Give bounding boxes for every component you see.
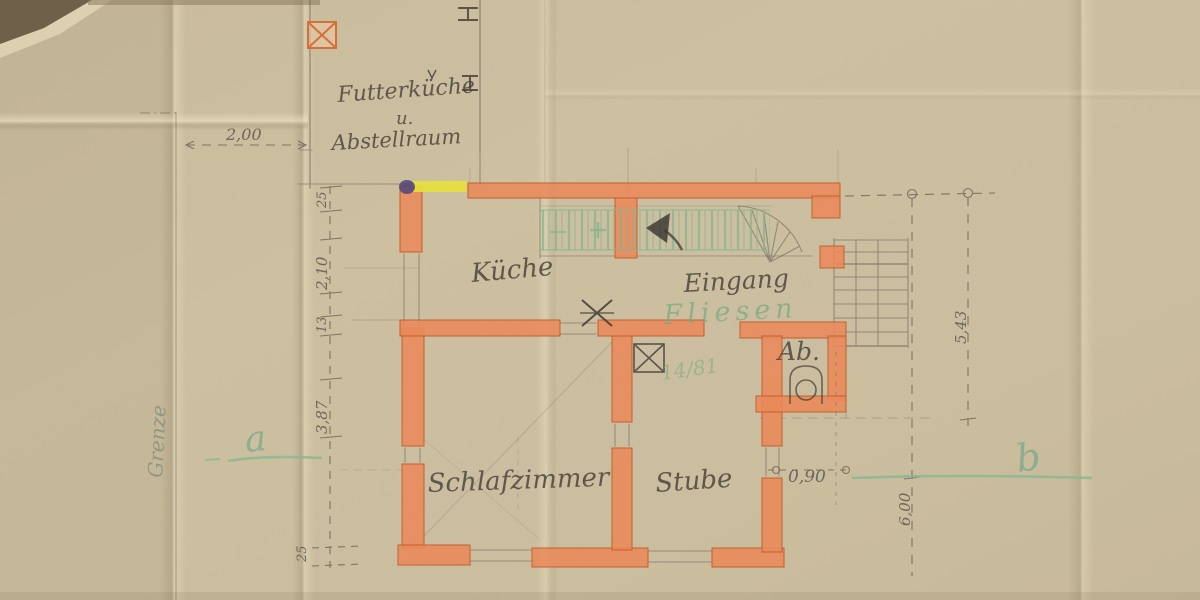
label-eingang: Eingang	[682, 264, 790, 299]
fold-crease-horizontal-right	[545, 88, 1200, 100]
left-fold-shading	[0, 0, 172, 600]
dim-schlafzimmer-depth: 3,87	[313, 400, 331, 434]
wall-mid-horizontal-1	[400, 320, 560, 336]
dim-kueche-depth: 2,10	[313, 256, 331, 291]
dim-annex-width: 2,00	[225, 125, 262, 144]
label-grenze: Grenze	[143, 404, 171, 478]
wall-left-middle	[402, 328, 424, 446]
wall-top	[468, 183, 840, 198]
wall-top-right-corner	[812, 196, 840, 218]
dim-right-upper: 5,43	[952, 311, 970, 344]
paper-background	[0, 0, 1200, 600]
label-annex-u: u.	[396, 108, 413, 129]
wall-left-lower	[402, 464, 424, 548]
door-highlight-yellow	[413, 181, 467, 192]
floorplan-drawing: Futterküche u. Abstellraum Küche Eingang…	[0, 0, 1200, 600]
scanned-floorplan-sheet: Futterküche u. Abstellraum Küche Eingang…	[0, 0, 1200, 600]
wall-divider-upper	[612, 336, 632, 422]
dim-wall-top: 25	[315, 191, 330, 209]
wall-bottom-1	[398, 545, 470, 565]
wall-bottom-2	[532, 548, 648, 567]
dim-mid-wall: 13	[315, 316, 330, 333]
wall-left-upper	[400, 186, 422, 252]
dim-door-width: 0,90	[788, 467, 826, 487]
wall-right-lower	[762, 478, 782, 552]
top-edge-shadow	[88, 0, 320, 5]
dim-right-lower: 6,00	[896, 492, 914, 526]
dim-wall-bottom: 25	[295, 545, 310, 563]
fold-crease-horizontal	[0, 112, 308, 130]
label-marker-a: a	[243, 418, 269, 461]
fold-crease-left	[160, 0, 186, 600]
wall-divider-lower	[612, 448, 632, 550]
wall-stair-block	[820, 246, 844, 268]
label-stube: Stube	[654, 464, 733, 499]
label-ab: Ab.	[776, 337, 820, 366]
wall-ab-right	[828, 336, 846, 400]
ink-blot	[399, 180, 415, 194]
annex-post-symbol	[308, 22, 336, 48]
bottom-edge-shadow	[0, 592, 1200, 600]
label-schlafzimmer: Schlafzimmer	[427, 463, 611, 499]
